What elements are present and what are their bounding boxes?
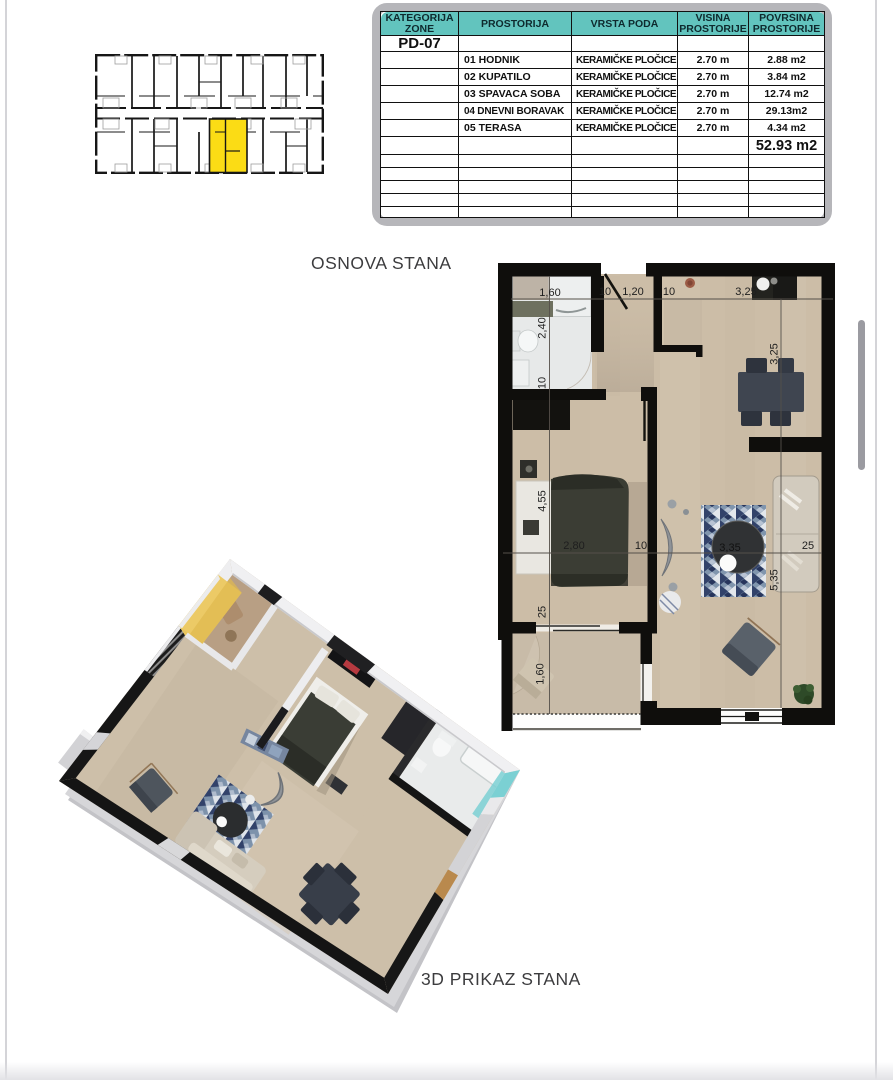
svg-text:3,35: 3,35	[719, 542, 740, 554]
svg-text:3,25: 3,25	[769, 343, 781, 364]
svg-text:3,25: 3,25	[735, 286, 756, 298]
svg-text:10: 10	[635, 540, 647, 552]
svg-text:5,35: 5,35	[769, 569, 781, 590]
svg-text:1,60: 1,60	[539, 287, 560, 299]
svg-text:4,55: 4,55	[537, 490, 549, 511]
svg-text:10: 10	[537, 377, 549, 389]
svg-text:10: 10	[663, 286, 675, 298]
svg-text:2,40: 2,40	[537, 317, 549, 338]
svg-text:1,20: 1,20	[622, 286, 643, 298]
svg-text:10: 10	[599, 286, 611, 298]
svg-text:25: 25	[802, 540, 814, 552]
